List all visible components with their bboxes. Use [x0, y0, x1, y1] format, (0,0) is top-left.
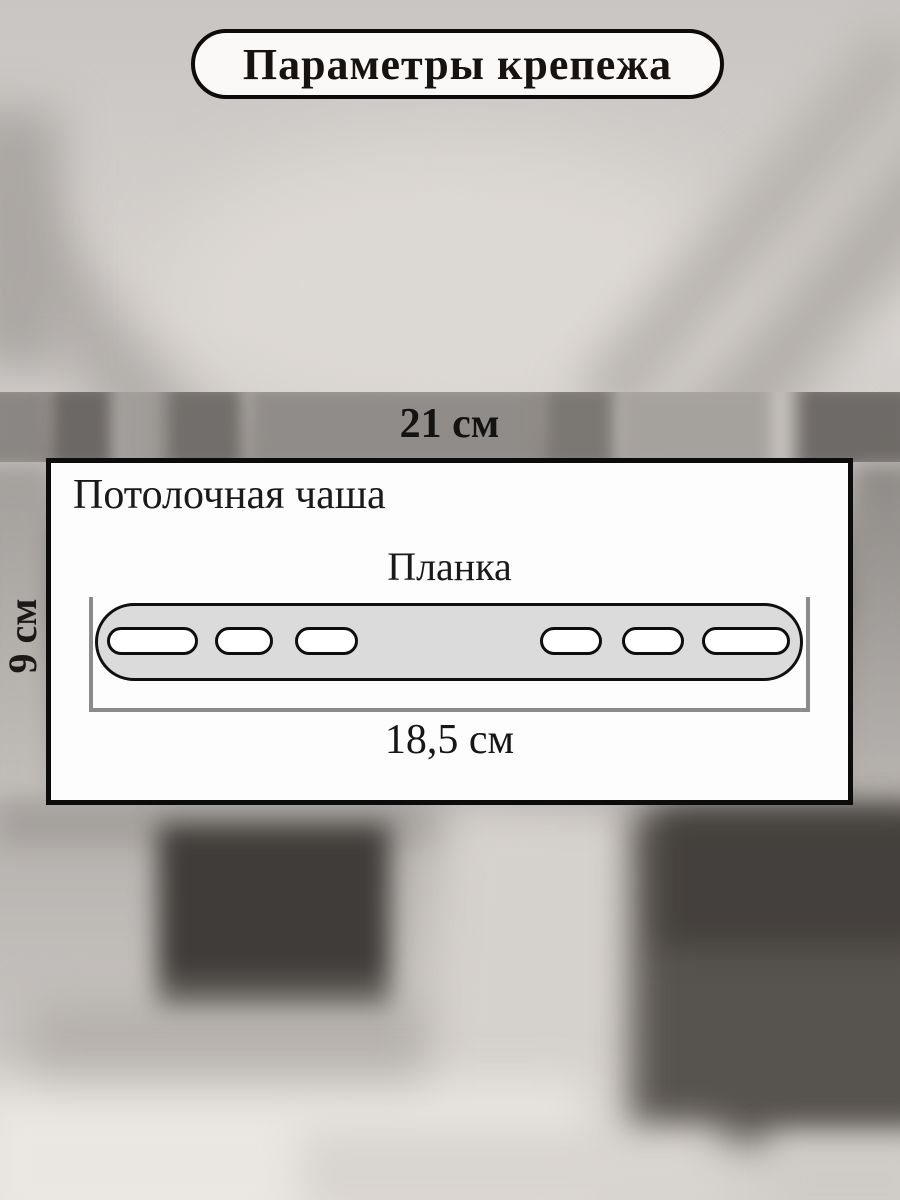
ceiling-cup-label: Потолочная чаша	[73, 471, 386, 519]
title-text: Параметры крепежа	[243, 39, 672, 90]
dimension-label-bottom: 18,5 см	[46, 716, 853, 764]
mounting-slot	[702, 627, 790, 655]
background-dark-sofa-top	[660, 812, 900, 947]
dimension-tick-left	[89, 597, 93, 712]
dimension-line	[89, 708, 810, 712]
dimension-tick-right	[806, 597, 810, 712]
mounting-slot	[540, 627, 602, 655]
background-wall-shadow-left	[0, 110, 60, 370]
background-wall-right-of-box	[856, 466, 900, 806]
plank-label: Планка	[46, 543, 853, 590]
background-floor-mid	[300, 1128, 720, 1200]
title-badge: Параметры крепежа	[191, 29, 724, 99]
background-wall-bar	[0, 392, 50, 462]
mounting-plank-drawing	[95, 603, 803, 681]
background-dark-furniture	[158, 824, 390, 1016]
mounting-slot	[107, 627, 198, 655]
product-infographic: Параметры крепежа 21 см 9 см Потолочная …	[0, 0, 900, 1200]
background-floor-right	[770, 1135, 900, 1200]
dimension-label-top: 21 см	[46, 400, 853, 448]
dimension-label-side: 9 см	[3, 575, 43, 697]
mounting-slot	[295, 627, 358, 655]
mounting-slot	[622, 627, 684, 655]
mounting-slot	[215, 627, 273, 655]
